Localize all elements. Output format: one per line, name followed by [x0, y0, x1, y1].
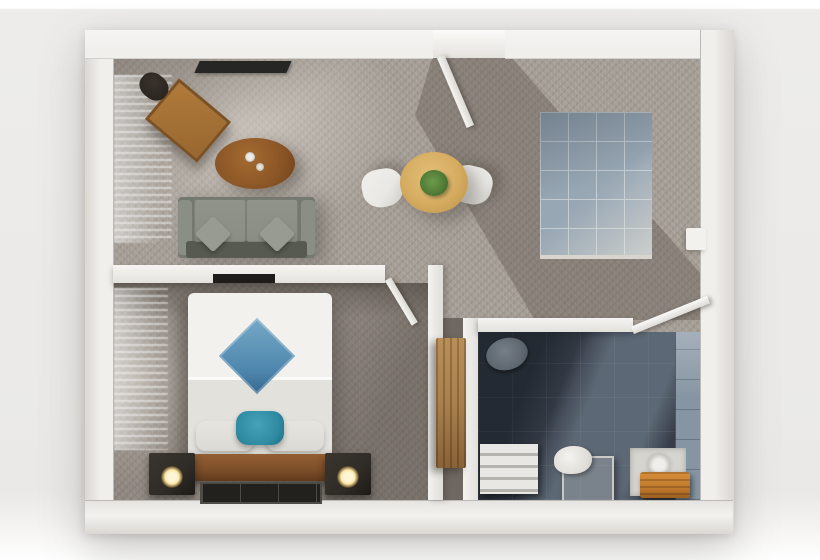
kitchen-threshold — [540, 255, 652, 259]
kitchen-tile-floor — [540, 112, 652, 258]
apartment-plan — [85, 30, 733, 533]
exterior-wall-bottom — [85, 500, 733, 534]
bedroom-tv — [213, 274, 275, 283]
teal-accent-pillow — [236, 411, 284, 445]
exterior-wall-top-right — [505, 30, 733, 59]
bedroom-window-blinds — [114, 288, 168, 450]
wooden-bench — [640, 472, 690, 498]
blue-diamond-blanket — [219, 318, 295, 394]
coffee-cup — [256, 163, 264, 171]
floorplan-render — [0, 0, 820, 560]
bedside-lamp-left — [161, 466, 183, 488]
exterior-wall-left — [85, 30, 114, 533]
bedside-lamp-right — [337, 466, 359, 488]
double-bed — [188, 293, 332, 461]
toilet — [483, 333, 531, 374]
bathroom-top-wall — [478, 318, 633, 332]
round-coffee-table — [215, 138, 295, 189]
tall-wood-cabinet — [436, 338, 466, 468]
potted-plant — [420, 170, 448, 196]
sofa — [178, 197, 315, 258]
wood-headboard — [183, 454, 341, 481]
towel-shelf — [480, 444, 538, 494]
towel — [554, 446, 592, 474]
exterior-wall-right — [700, 30, 734, 533]
coffee-cup — [245, 152, 255, 162]
wall-radiator — [686, 228, 706, 250]
living-room-tv — [194, 61, 291, 73]
exterior-wall-top-left — [85, 30, 433, 59]
round-dining-table — [400, 152, 468, 213]
bathroom — [478, 332, 700, 500]
bedroom-floor-mat — [200, 482, 322, 504]
